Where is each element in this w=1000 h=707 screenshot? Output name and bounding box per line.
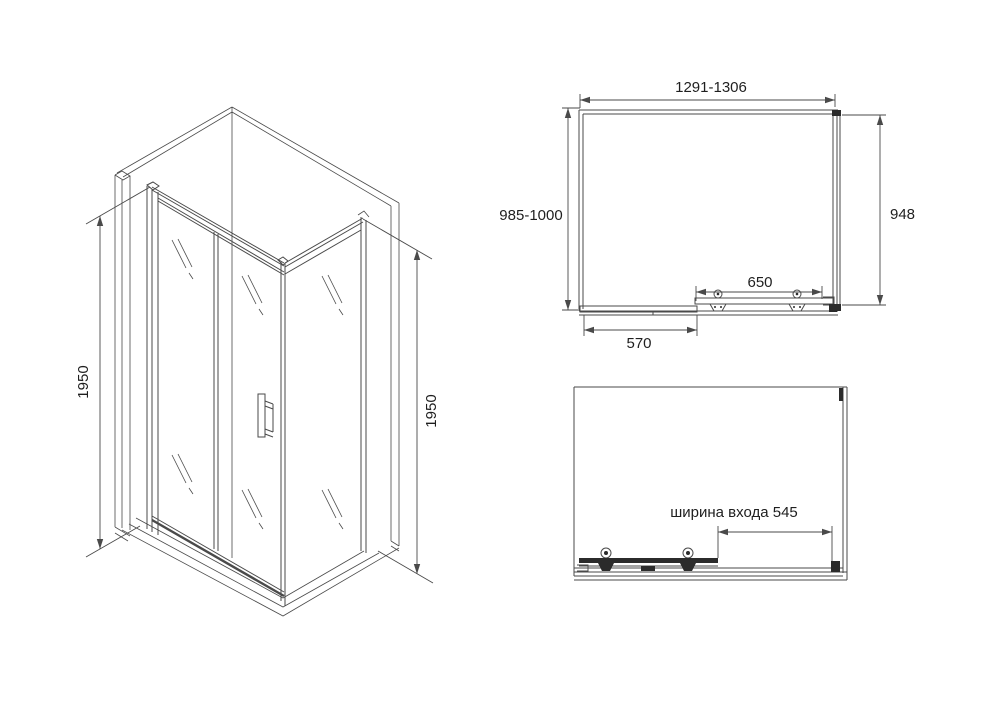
dim-width-lines — [580, 94, 835, 108]
dim-height-left: 1950 — [75, 187, 150, 557]
door-left-post — [147, 182, 159, 535]
rail-end-stop — [829, 304, 837, 312]
top-view-outline — [579, 110, 840, 315]
bracket-bolt-icon — [799, 306, 801, 308]
front-view: ширина входа 545 — [574, 387, 847, 580]
dim-arrow-right-icon — [687, 327, 697, 333]
dim-fixed-panel-lines — [584, 315, 697, 336]
wall-top-edges — [117, 107, 399, 558]
front-view-frame — [574, 387, 847, 580]
bracket-bolt-icon — [793, 306, 795, 308]
depth-range-label: 985-1000 — [499, 207, 562, 224]
front-view-solids — [579, 388, 843, 572]
entrance-width-label: ширина входа 545 — [670, 504, 798, 521]
door-rail-width-label: 650 — [747, 274, 772, 291]
dim-arrow-down-icon — [877, 295, 883, 305]
left-wall-edge — [115, 171, 130, 530]
dim-height-left-lines — [86, 187, 150, 557]
isometric-view: 1950 1950 — [75, 107, 440, 616]
roller-axle-icon — [604, 551, 608, 555]
shower-enclosure-drawing: 1950 1950 — [0, 0, 1000, 707]
side-panel-cap — [832, 110, 841, 116]
dim-arrow-right-icon — [812, 289, 822, 295]
top-view: 1291-1306 985-1000 948 650 5 — [499, 79, 915, 352]
top-view-walls — [579, 110, 840, 315]
dim-width: 1291-1306 — [580, 79, 835, 108]
dim-arrow-left-icon — [718, 529, 728, 535]
height-right-label: 1950 — [423, 394, 440, 427]
dim-entrance: ширина входа 545 — [670, 504, 832, 561]
door-stopper — [831, 561, 840, 572]
technical-drawing-page: 1950 1950 — [0, 0, 1000, 707]
side-panel — [285, 217, 366, 553]
height-left-label: 1950 — [75, 365, 92, 398]
width-range-label: 1291-1306 — [675, 79, 747, 96]
front-corner-post — [278, 257, 288, 606]
door-handle — [258, 394, 273, 437]
front-view-outline — [574, 387, 847, 580]
dim-side-panel-lines — [842, 115, 886, 305]
fixed-panel-width-label: 570 — [626, 335, 651, 352]
glass-shine-marks — [172, 239, 343, 529]
bracket-bolt-icon — [714, 306, 716, 308]
wall-profile-cap — [839, 388, 843, 401]
roller-axle-icon — [717, 293, 720, 296]
door-top-bar — [579, 558, 718, 563]
roller-axle-icon — [796, 293, 799, 296]
dim-arrow-right-icon — [822, 529, 832, 535]
dim-side-panel: 948 — [842, 115, 915, 305]
dim-depth-lines — [562, 108, 580, 310]
dim-entrance-lines — [718, 526, 832, 561]
dim-arrow-down-icon — [565, 300, 571, 310]
dim-fixed-panel: 570 — [584, 315, 697, 352]
dim-height-right: 1950 — [363, 219, 440, 583]
side-panel-depth-label: 948 — [890, 206, 915, 223]
roller-brackets — [710, 304, 805, 311]
bracket-bolt-icon — [720, 306, 722, 308]
isometric-door-assembly — [122, 182, 399, 616]
shower-tray — [122, 518, 399, 616]
roller-bracket — [680, 563, 696, 571]
dim-arrow-up-icon — [877, 115, 883, 125]
roller-axle-icon — [686, 551, 690, 555]
dim-arrow-left-icon — [580, 97, 590, 103]
dim-depth: 985-1000 — [499, 108, 580, 310]
door-middle-post — [214, 232, 218, 551]
top-view-solids — [714, 110, 841, 312]
dim-arrow-up-icon — [565, 108, 571, 118]
dim-arrow-left-icon — [696, 289, 706, 295]
dim-arrow-left-icon — [584, 327, 594, 333]
center-guide — [641, 566, 655, 571]
dim-arrow-right-icon — [825, 97, 835, 103]
roller-bracket — [598, 563, 614, 571]
